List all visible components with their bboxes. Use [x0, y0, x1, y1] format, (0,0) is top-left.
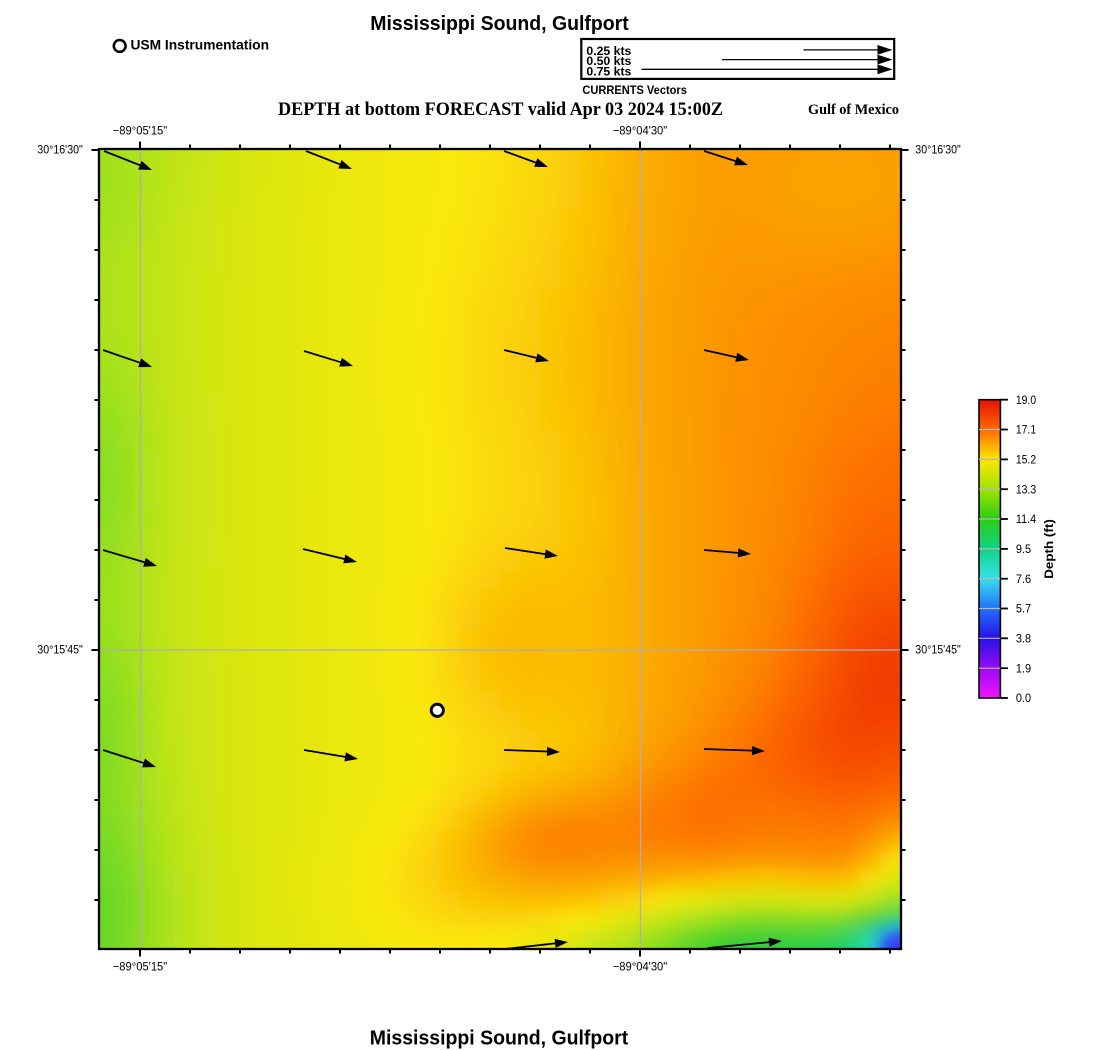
svg-text:11.4: 11.4 — [1016, 512, 1036, 526]
svg-text:−89°05'15": −89°05'15" — [113, 123, 168, 137]
svg-text:−89°04'30": −89°04'30" — [613, 123, 668, 137]
svg-text:DEPTH at bottom FORECAST valid: DEPTH at bottom FORECAST valid Apr 03 20… — [278, 100, 723, 120]
svg-text:0.0: 0.0 — [1016, 691, 1031, 705]
svg-text:3.8: 3.8 — [1016, 632, 1031, 646]
svg-text:USM Instrumentation: USM Instrumentation — [131, 37, 270, 53]
svg-text:−89°05'15": −89°05'15" — [113, 960, 168, 974]
svg-text:19.0: 19.0 — [1016, 393, 1036, 407]
svg-text:9.5: 9.5 — [1016, 542, 1031, 556]
svg-text:13.3: 13.3 — [1016, 482, 1036, 496]
svg-text:17.1: 17.1 — [1016, 423, 1036, 437]
svg-text:0.75 kts: 0.75 kts — [586, 64, 631, 78]
svg-text:Gulf of Mexico: Gulf of Mexico — [808, 102, 899, 118]
svg-text:1.9: 1.9 — [1016, 661, 1031, 675]
svg-text:7.6: 7.6 — [1016, 572, 1031, 586]
svg-text:5.7: 5.7 — [1016, 602, 1031, 616]
svg-text:15.2: 15.2 — [1016, 453, 1036, 467]
svg-text:−89°04'30": −89°04'30" — [613, 960, 668, 974]
svg-text:Depth (ft): Depth (ft) — [1042, 519, 1056, 579]
svg-text:CURRENTS Vectors: CURRENTS Vectors — [582, 83, 687, 97]
svg-text:30°16'30": 30°16'30" — [37, 142, 83, 156]
svg-text:Mississippi Sound, Gulfport: Mississippi Sound, Gulfport — [370, 1027, 629, 1050]
svg-text:30°15'45": 30°15'45" — [37, 642, 83, 656]
svg-text:Mississippi Sound, Gulfport: Mississippi Sound, Gulfport — [370, 12, 629, 35]
svg-text:30°16'30": 30°16'30" — [915, 142, 961, 156]
svg-text:30°15'45": 30°15'45" — [915, 642, 961, 656]
